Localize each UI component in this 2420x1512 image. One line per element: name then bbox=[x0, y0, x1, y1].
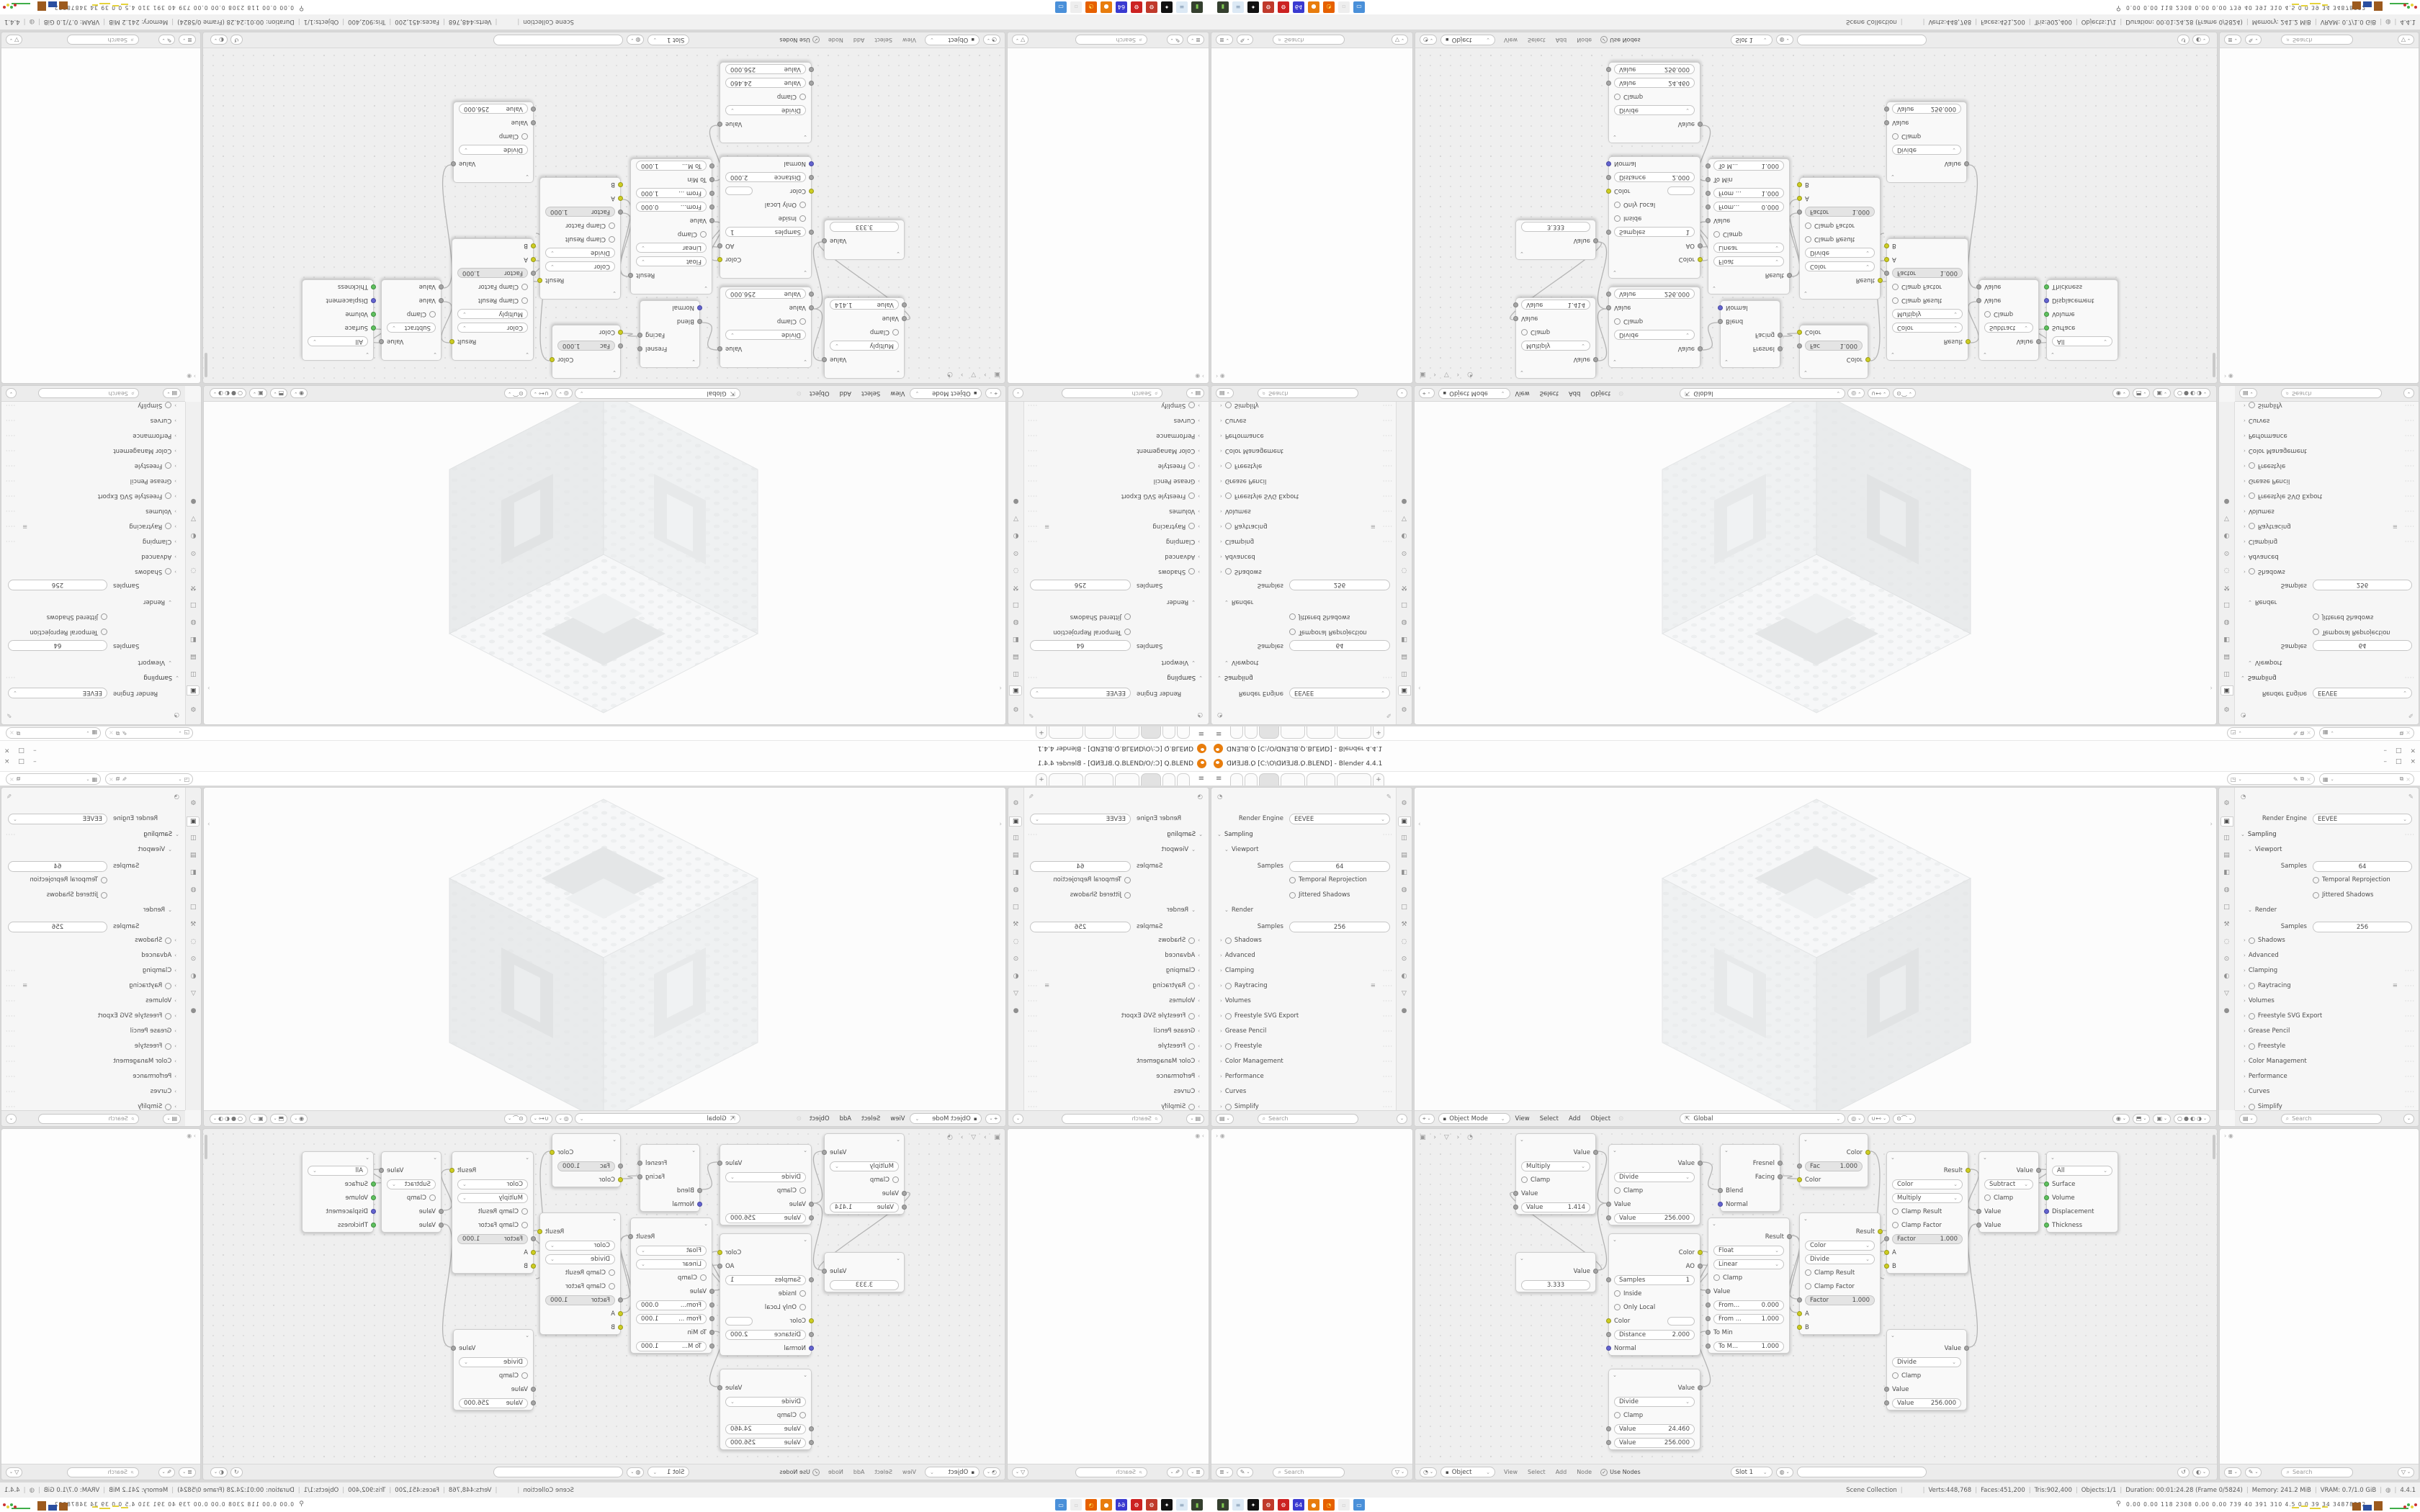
properties-section-clamping[interactable]: ›Clamping···· bbox=[2244, 538, 2415, 545]
node-select[interactable]: Divide⌄ bbox=[725, 1172, 806, 1182]
input-socket[interactable] bbox=[531, 120, 536, 125]
input-socket[interactable] bbox=[618, 343, 623, 348]
workspace-tab-5[interactable] bbox=[1307, 726, 1335, 739]
node-editor-scrollbar[interactable] bbox=[205, 353, 207, 377]
menu-icon[interactable]: ≡ bbox=[1198, 729, 1204, 737]
render-engine-dropdown[interactable]: EEVEE⌄ bbox=[1289, 688, 1390, 698]
input-socket[interactable] bbox=[1706, 191, 1711, 196]
checkbox[interactable] bbox=[1188, 523, 1195, 530]
workspace-tab-3[interactable] bbox=[1259, 773, 1279, 786]
output-socket[interactable] bbox=[1698, 1385, 1703, 1390]
input-socket[interactable] bbox=[439, 284, 444, 289]
node-math-divide-2[interactable]: ⌄ValueDivide⌄ClampValueValue256.000 bbox=[1886, 1329, 1967, 1410]
properties-tab-icon-1[interactable]: ⚙ bbox=[1010, 799, 1023, 809]
editor-type-button[interactable]: ◔⌄ bbox=[1420, 35, 1437, 45]
node-collapse-icon[interactable]: ⌄ bbox=[1708, 282, 1789, 294]
input-socket[interactable] bbox=[709, 204, 714, 210]
node-number-field[interactable]: Value256.000 bbox=[725, 1438, 806, 1448]
input-socket[interactable] bbox=[1606, 305, 1611, 310]
properties-section-simplify[interactable]: ›Simplify···· bbox=[1027, 402, 1200, 409]
copy-icon[interactable]: ⧉ bbox=[2300, 775, 2305, 783]
workspace-tab-3[interactable] bbox=[1259, 726, 1279, 739]
checkbox[interactable] bbox=[1188, 493, 1195, 500]
node-collapse-icon[interactable]: ⌄ bbox=[2047, 1152, 2117, 1164]
node-checkbox[interactable] bbox=[700, 231, 707, 238]
properties-tab-icon-5[interactable]: ◧ bbox=[1010, 868, 1023, 878]
properties-tab-icon-10[interactable]: ⊙ bbox=[2220, 547, 2233, 557]
floppy64-icon[interactable]: 64 bbox=[1116, 1, 1127, 13]
node-checkbox[interactable] bbox=[1892, 1208, 1899, 1215]
workspace-tab-4[interactable] bbox=[1281, 726, 1305, 739]
use-nodes-checkbox[interactable]: ✓ Use Nodes bbox=[779, 1469, 820, 1476]
input-socket[interactable] bbox=[1606, 1277, 1611, 1282]
viewport-tool-button-2[interactable]: ∪⊷⌄ bbox=[530, 1114, 552, 1124]
node-select[interactable]: Subtract⌄ bbox=[387, 1179, 436, 1189]
properties-section-freestyle-svg-export[interactable]: ›Freestyle SVG Export···· bbox=[2244, 492, 2415, 500]
search-input[interactable]: ⌕ Search bbox=[38, 389, 139, 399]
input-socket[interactable] bbox=[371, 325, 376, 330]
render-engine-dropdown[interactable]: EEVEE⌄ bbox=[2313, 688, 2412, 698]
node-collapse-icon[interactable]: ⌄ bbox=[631, 1218, 712, 1230]
properties-section-viewport[interactable]: ⌄Viewport bbox=[1224, 659, 1393, 666]
filter-dropdown[interactable]: ▽⌄ bbox=[1012, 35, 1028, 45]
overlay-dropdown[interactable]: ◐⌄ bbox=[210, 1467, 228, 1477]
properties-section-render[interactable]: ⌄Render bbox=[5, 906, 172, 914]
input-socket[interactable] bbox=[809, 1346, 814, 1351]
filter-dropdown[interactable]: ▽⌄ bbox=[6, 1467, 22, 1477]
properties-section-clamping[interactable]: ›Clamping···· bbox=[5, 967, 176, 974]
input-socket[interactable] bbox=[2044, 1223, 2049, 1228]
properties-section-color-management[interactable]: ›Color Management···· bbox=[5, 447, 176, 454]
render-engine-dropdown[interactable]: EEVEE⌄ bbox=[2313, 814, 2412, 824]
node-select[interactable]: Divide⌄ bbox=[1614, 1172, 1695, 1182]
node-checkbox[interactable] bbox=[1521, 1176, 1528, 1183]
properties-section-sampling[interactable]: ⌄Sampling···· bbox=[1027, 831, 1203, 838]
checkbox[interactable] bbox=[1124, 892, 1131, 899]
node-checkbox[interactable] bbox=[1713, 1274, 1720, 1281]
viewport-tool-button-1[interactable]: ◎⌄ bbox=[1847, 1114, 1865, 1124]
checkbox[interactable] bbox=[101, 892, 107, 899]
properties-section-clamping[interactable]: ›Clamping···· bbox=[1220, 538, 1393, 545]
node-checkbox[interactable] bbox=[521, 284, 528, 290]
input-socket[interactable] bbox=[2044, 325, 2049, 330]
node-math-subtract[interactable]: ⌄ValueSubtract⌄ClampValueValue bbox=[1978, 279, 2039, 361]
node-select[interactable]: Float⌄ bbox=[636, 257, 707, 267]
properties-section-advanced[interactable]: ›Advanced bbox=[2244, 553, 2415, 560]
properties-tab-icon-7[interactable]: □ bbox=[1398, 903, 1411, 913]
system-monitor-icon[interactable]: ▮ bbox=[1191, 1499, 1203, 1511]
node-checkbox[interactable] bbox=[799, 215, 806, 222]
output-socket[interactable] bbox=[1698, 122, 1703, 127]
node-select[interactable]: Multiply⌄ bbox=[830, 1161, 899, 1171]
node-material-output[interactable]: ⌄All⌄SurfaceVolumeDisplacementThickness bbox=[2046, 279, 2118, 361]
properties-section-raytracing[interactable]: ›Raytracing≡···· bbox=[5, 982, 176, 989]
properties-section-performance[interactable]: ›Performance···· bbox=[1027, 432, 1200, 439]
menu-add[interactable]: Add bbox=[1556, 37, 1567, 43]
viewport-tool-button-3[interactable]: ⊙⌒⌄ bbox=[1893, 389, 1916, 399]
properties-section-curves[interactable]: ›Curves···· bbox=[5, 417, 176, 424]
properties-section-render[interactable]: ⌄Render bbox=[1027, 906, 1196, 914]
viewport-tool-button-3[interactable]: ⊙⌒⌄ bbox=[504, 1114, 527, 1124]
node-checkbox[interactable] bbox=[521, 1208, 528, 1215]
properties-tab-icon-6[interactable]: ◍ bbox=[187, 616, 200, 626]
checkbox[interactable] bbox=[2313, 892, 2319, 899]
input-socket[interactable] bbox=[371, 312, 376, 317]
node-number-field[interactable]: Fac1.000 bbox=[557, 1161, 615, 1171]
node-number-field[interactable]: Distance2.000 bbox=[1614, 1330, 1695, 1340]
output-socket[interactable] bbox=[1865, 357, 1870, 362]
node-collapse-icon[interactable]: ⌄ bbox=[1721, 1145, 1780, 1156]
node-collapse-icon[interactable]: ⌄ bbox=[1979, 348, 2038, 360]
search-input[interactable]: ⌕ Search bbox=[2281, 389, 2382, 399]
node-collapse-icon[interactable]: ⌄ bbox=[382, 1152, 441, 1164]
copy-icon[interactable]: ⧉ bbox=[17, 775, 21, 783]
properties-section-color-management[interactable]: ›Color Management···· bbox=[1027, 447, 1200, 454]
input-socket[interactable] bbox=[371, 284, 376, 289]
properties-tab-icon-10[interactable]: ⊙ bbox=[187, 955, 200, 965]
use-nodes-checkbox[interactable]: ✓ Use Nodes bbox=[779, 37, 820, 44]
node-ambient-occlusion[interactable]: ⌄ColorAOSamples1InsideOnly LocalColorDis… bbox=[720, 1233, 812, 1356]
node-number-field[interactable]: To M...1.000 bbox=[636, 161, 707, 171]
properties-section-shadows[interactable]: ›Shadows bbox=[1027, 937, 1200, 944]
ghost-app-icon[interactable]: ▫ bbox=[1338, 1, 1350, 13]
properties-section-sampling[interactable]: ⌄Sampling···· bbox=[2241, 831, 2415, 838]
node-math-divide-3[interactable]: ⌄ValueDivide⌄ClampValue24.460Value256.00… bbox=[1608, 1369, 1700, 1450]
properties-tab-icon-13[interactable]: ● bbox=[187, 495, 200, 505]
properties-section-render[interactable]: ⌄Render bbox=[2248, 906, 2415, 914]
properties-section-sampling[interactable]: ⌄Sampling···· bbox=[5, 831, 179, 838]
properties-tab-icon-5[interactable]: ◧ bbox=[1398, 634, 1411, 644]
properties-section-color-management[interactable]: ›Color Management···· bbox=[2244, 1058, 2415, 1065]
transform-pivot-icon[interactable]: ⊙ bbox=[1618, 1115, 1623, 1122]
ghost-app-icon[interactable]: ▫ bbox=[1338, 1499, 1350, 1511]
menu-node[interactable]: Node bbox=[1577, 37, 1592, 43]
properties-section-render[interactable]: ⌄Render bbox=[1224, 598, 1393, 606]
panel-corner-icons[interactable]: › ◉ bbox=[187, 373, 196, 379]
node-number-field[interactable]: Factor1.000 bbox=[545, 1295, 615, 1305]
properties-tab-icon-12[interactable]: ▽ bbox=[1010, 989, 1023, 999]
input-socket[interactable] bbox=[2044, 312, 2049, 317]
node-number-field[interactable]: Factor1.000 bbox=[545, 207, 615, 217]
node-number-field[interactable]: Value1.414 bbox=[1521, 1202, 1590, 1212]
copy-icon[interactable]: ⧉ bbox=[2400, 775, 2404, 783]
add-workspace-button[interactable]: + bbox=[1036, 773, 1047, 786]
checkbox[interactable] bbox=[1225, 1043, 1232, 1050]
properties-tab-icon-9[interactable]: ◌ bbox=[2220, 564, 2233, 575]
property-value-field[interactable]: 64 bbox=[2313, 640, 2412, 651]
node-number-field[interactable]: Samples1 bbox=[725, 228, 806, 238]
checkbox[interactable] bbox=[165, 523, 171, 530]
checkbox[interactable] bbox=[1124, 877, 1131, 883]
input-socket[interactable] bbox=[1706, 1289, 1711, 1294]
orientation-dropdown[interactable]: ⇱Global⌄ bbox=[1680, 1113, 1845, 1124]
overlay-dropdown[interactable]: ◐⌄ bbox=[2192, 1467, 2210, 1477]
node-map-range[interactable]: ⌄ResultFloat⌄Linear⌄ClampValueFrom...0.0… bbox=[1708, 1218, 1790, 1354]
output-socket[interactable] bbox=[379, 339, 384, 344]
properties-tab-icon-13[interactable]: ● bbox=[187, 1007, 200, 1017]
viewport-tool-button-3[interactable]: ⊙⌒⌄ bbox=[1893, 1114, 1916, 1124]
viewport-tool-button-1[interactable]: ◎⌄ bbox=[555, 389, 573, 399]
properties-section-render[interactable]: ⌄Render bbox=[1027, 598, 1196, 606]
color-swatch[interactable] bbox=[1667, 187, 1695, 196]
properties-section-jittered-shadows[interactable]: Jittered Shadows bbox=[1027, 613, 1131, 621]
input-socket[interactable] bbox=[439, 1223, 444, 1228]
output-socket[interactable] bbox=[822, 238, 827, 243]
output-socket[interactable] bbox=[637, 346, 642, 351]
node-graph[interactable]: ▣ › ▽ › ◔ ⌄ValueMultiply⌄ClampValueValue… bbox=[1415, 1129, 2217, 1464]
close-button[interactable]: × bbox=[2410, 747, 2416, 754]
input-socket[interactable] bbox=[618, 1177, 623, 1182]
checkbox[interactable] bbox=[1225, 937, 1232, 944]
input-socket[interactable] bbox=[1718, 1202, 1723, 1207]
input-socket[interactable] bbox=[1513, 316, 1518, 321]
workspace-tab-1[interactable] bbox=[1177, 726, 1190, 739]
output-socket[interactable] bbox=[2036, 339, 2041, 344]
input-socket[interactable] bbox=[2044, 1195, 2049, 1200]
menu-add[interactable]: Add bbox=[840, 1115, 851, 1122]
workspace-tab-3[interactable] bbox=[1141, 726, 1161, 739]
properties-tab-icon-1[interactable]: ⚙ bbox=[187, 799, 200, 809]
node-collapse-icon[interactable]: ⌄ bbox=[302, 1152, 373, 1164]
shader-editor[interactable]: ▣ › ▽ › ◔ ⌄ValueMultiply⌄ClampValueValue… bbox=[202, 32, 1005, 384]
node-select[interactable]: All⌄ bbox=[308, 337, 368, 347]
node-select[interactable]: Color⌄ bbox=[545, 262, 615, 272]
properties-tab-icon-10[interactable]: ⊙ bbox=[1398, 955, 1411, 965]
node-checkbox[interactable] bbox=[609, 1283, 615, 1290]
properties-section-grease-pencil[interactable]: ›Grease Pencil···· bbox=[2244, 477, 2415, 485]
properties-tab-icon-8[interactable]: ⚒ bbox=[2220, 920, 2233, 930]
sidebar-toggle-right-icon[interactable]: › bbox=[2210, 821, 2213, 828]
shader-context-dropdown[interactable]: ▪Object⌄ bbox=[1440, 1467, 1495, 1477]
node-invert-color[interactable]: ⌄ColorFac1.000Color bbox=[1799, 325, 1868, 379]
node-select[interactable]: Multiply⌄ bbox=[1521, 341, 1590, 351]
slot-dropdown[interactable]: Slot 1⌄ bbox=[647, 35, 689, 45]
properties-tab-icon-13[interactable]: ● bbox=[1398, 1007, 1411, 1017]
output-socket[interactable] bbox=[637, 1174, 642, 1179]
properties-tab-icon-7[interactable]: □ bbox=[187, 599, 200, 609]
ghost-app-icon[interactable]: ▫ bbox=[1070, 1499, 1082, 1511]
pin-icon[interactable]: ✎ bbox=[6, 793, 12, 801]
menu-select[interactable]: Select bbox=[1528, 37, 1546, 43]
display-settings-icon[interactable]: ▭ bbox=[1055, 1499, 1067, 1511]
pin-icon[interactable]: ✎ bbox=[1386, 711, 1391, 719]
properties-tab-icon-4[interactable]: ▤ bbox=[1398, 651, 1411, 661]
minimize-button[interactable]: – bbox=[33, 747, 37, 754]
input-socket[interactable] bbox=[1797, 1325, 1802, 1330]
node-select[interactable]: Color⌄ bbox=[457, 323, 528, 333]
node-number-field[interactable]: Value24.460 bbox=[725, 1424, 806, 1434]
properties-section-clamping[interactable]: ›Clamping···· bbox=[1027, 538, 1200, 545]
options-dropdown[interactable]: ⌄ bbox=[1397, 1114, 1407, 1124]
properties-tab-icon-2[interactable]: ▣ bbox=[1398, 816, 1411, 827]
panel-corner-icons[interactable]: › ◉ bbox=[2224, 1133, 2233, 1139]
overlay-button-1[interactable]: ◉⌄ bbox=[290, 389, 308, 399]
properties-section-freestyle-svg-export[interactable]: ›Freestyle SVG Export···· bbox=[1220, 1012, 1393, 1020]
properties-section-volumes[interactable]: ›Volumes···· bbox=[1027, 997, 1200, 1004]
checkbox[interactable] bbox=[2313, 877, 2319, 883]
input-socket[interactable] bbox=[1884, 1250, 1889, 1255]
output-socket[interactable] bbox=[451, 1346, 456, 1351]
pin-icon[interactable]: ✎ bbox=[2293, 776, 2298, 783]
property-value-field[interactable]: 64 bbox=[8, 640, 107, 651]
paint-mode-dropdown[interactable]: ✎⌄ bbox=[1237, 35, 1254, 45]
properties-section-performance[interactable]: ›Performance···· bbox=[2244, 1073, 2415, 1080]
node-collapse-icon[interactable]: ⌄ bbox=[1800, 287, 1880, 299]
node-select[interactable]: All⌄ bbox=[308, 1166, 368, 1176]
node-select[interactable]: Divide⌄ bbox=[1614, 1397, 1695, 1407]
node-mix-multiply[interactable]: ⌄ResultColor⌄Multiply⌄Clamp ResultClamp … bbox=[1886, 1151, 1968, 1274]
properties-section-volumes[interactable]: ›Volumes···· bbox=[5, 508, 176, 515]
properties-section-simplify[interactable]: ›Simplify···· bbox=[1027, 1103, 1200, 1110]
properties-tab-icon-12[interactable]: ▽ bbox=[187, 513, 200, 523]
node-checkbox[interactable] bbox=[1892, 1372, 1899, 1379]
node-invert-color[interactable]: ⌄ColorFac1.000Color bbox=[552, 1133, 621, 1187]
sidebar-toggle-left-icon[interactable]: ‹ bbox=[999, 821, 1002, 828]
node-number-field[interactable]: Value24.460 bbox=[1614, 1424, 1695, 1434]
properties-section-performance[interactable]: ›Performance···· bbox=[5, 1073, 176, 1080]
properties-section-curves[interactable]: ›Curves···· bbox=[1220, 417, 1393, 424]
properties-tab-icon-6[interactable]: ◍ bbox=[2220, 886, 2233, 896]
input-socket[interactable] bbox=[618, 196, 623, 201]
node-collapse-icon[interactable]: ⌄ bbox=[1516, 1134, 1595, 1146]
checkbox[interactable] bbox=[165, 937, 171, 944]
node-value-field[interactable]: 3.333 bbox=[1521, 1280, 1590, 1290]
mode-dropdown[interactable]: ▪Object Mode⌄ bbox=[1438, 1113, 1510, 1124]
node-select[interactable]: Multiply⌄ bbox=[1892, 310, 1963, 320]
properties-tab-icon-5[interactable]: ◧ bbox=[187, 634, 200, 644]
properties-tab-icon-7[interactable]: □ bbox=[2220, 903, 2233, 913]
node-math-divide-1[interactable]: ⌄ValueDivide⌄ClampValueValue256.000 bbox=[720, 287, 812, 368]
checkbox[interactable] bbox=[165, 493, 171, 500]
node-number-field[interactable]: From...0.000 bbox=[636, 1300, 707, 1310]
node-math-multiply[interactable]: ⌄ValueMultiply⌄ClampValueValue1.414 bbox=[824, 297, 905, 379]
checkbox[interactable] bbox=[1124, 629, 1131, 636]
node-select[interactable]: Float⌄ bbox=[636, 1246, 707, 1256]
output-socket[interactable] bbox=[1966, 339, 1971, 344]
search-input[interactable]: ⌕ Search bbox=[2281, 1114, 2382, 1124]
properties-section-temporal-reprojection[interactable]: Temporal Reprojection bbox=[5, 876, 107, 883]
output-socket[interactable] bbox=[822, 1150, 827, 1155]
properties-tab-icon-7[interactable]: □ bbox=[1010, 903, 1023, 913]
node-collapse-icon[interactable]: ⌄ bbox=[1800, 1134, 1868, 1146]
node-collapse-icon[interactable]: ⌄ bbox=[640, 356, 699, 367]
node-number-field[interactable]: To M...1.000 bbox=[1713, 161, 1784, 171]
workspace-tab-6[interactable] bbox=[1337, 773, 1371, 786]
properties-tab-icon-12[interactable]: ▽ bbox=[1398, 989, 1411, 999]
node-collapse-icon[interactable]: ⌄ bbox=[1887, 348, 1968, 360]
properties-tab-icon-11[interactable]: ◐ bbox=[1398, 530, 1411, 540]
input-socket[interactable] bbox=[1606, 292, 1611, 297]
properties-tab-icon-10[interactable]: ⊙ bbox=[2220, 955, 2233, 965]
node-checkbox[interactable] bbox=[521, 1372, 528, 1379]
options-dropdown[interactable]: ⌄ bbox=[1013, 389, 1023, 399]
node-checkbox[interactable] bbox=[1892, 1222, 1899, 1228]
node-value[interactable]: ⌄Value3.333 bbox=[824, 220, 905, 260]
input-socket[interactable] bbox=[439, 298, 444, 303]
properties-section-sampling[interactable]: ⌄Sampling···· bbox=[1027, 674, 1203, 681]
input-socket[interactable] bbox=[809, 189, 814, 194]
node-collapse-icon[interactable]: ⌄ bbox=[2047, 348, 2117, 360]
node-layer-weight[interactable]: ⌄FresnelFacingBlendNormal bbox=[640, 300, 700, 368]
menu-add[interactable]: Add bbox=[853, 1469, 865, 1475]
checkbox[interactable] bbox=[1289, 892, 1296, 899]
properties-section-shadows[interactable]: ›Shadows bbox=[1220, 568, 1393, 575]
properties-section-curves[interactable]: ›Curves···· bbox=[5, 1088, 176, 1095]
node-math-divide-3[interactable]: ⌄ValueDivide⌄ClampValue24.460Value256.00… bbox=[720, 1369, 812, 1450]
material-name-field[interactable] bbox=[1797, 1467, 1927, 1477]
properties-section-jittered-shadows[interactable]: Jittered Shadows bbox=[5, 613, 107, 621]
render-engine-dropdown[interactable]: EEVEE⌄ bbox=[8, 688, 107, 698]
workspace-tab-6[interactable] bbox=[1049, 773, 1083, 786]
menu-select[interactable]: Select bbox=[874, 1469, 892, 1475]
properties-section-shadows[interactable]: ›Shadows bbox=[2244, 568, 2415, 575]
node-value-field[interactable]: 3.333 bbox=[1521, 222, 1590, 233]
floppy64-icon[interactable]: 64 bbox=[1293, 1, 1304, 13]
node-collapse-icon[interactable]: ⌄ bbox=[1516, 366, 1595, 378]
transform-pivot-icon[interactable]: ⊙ bbox=[797, 1115, 802, 1122]
node-checkbox[interactable] bbox=[521, 133, 528, 140]
shader-editor[interactable]: ▣ › ▽ › ◔ ⌄ValueMultiply⌄ClampValueValue… bbox=[1415, 1128, 2218, 1480]
input-socket[interactable] bbox=[697, 305, 702, 310]
paint-mode-dropdown[interactable]: ✎⌄ bbox=[2245, 1467, 2262, 1477]
properties-section-sampling[interactable]: ⌄Sampling···· bbox=[1217, 674, 1393, 681]
input-socket[interactable] bbox=[531, 1387, 536, 1392]
overlay-button-2[interactable]: ⬒⌄ bbox=[2133, 1114, 2151, 1124]
node-number-field[interactable]: From ...1.000 bbox=[1713, 189, 1784, 199]
node-material-output[interactable]: ⌄All⌄SurfaceVolumeDisplacementThickness bbox=[302, 1151, 374, 1233]
properties-section-temporal-reprojection[interactable]: Temporal Reprojection bbox=[2313, 876, 2415, 883]
render-engine-dropdown[interactable]: EEVEE⌄ bbox=[1030, 814, 1131, 824]
node-number-field[interactable]: Value256.000 bbox=[725, 289, 806, 300]
sidebar-toggle-left-icon[interactable]: ‹ bbox=[999, 684, 1002, 691]
node-number-field[interactable]: Distance2.000 bbox=[725, 173, 806, 183]
node-number-field[interactable]: From...0.000 bbox=[636, 202, 707, 212]
properties-tab-icon-3[interactable]: ◫ bbox=[187, 834, 200, 844]
node-collapse-icon[interactable]: ⌄ bbox=[1516, 1253, 1595, 1264]
overlay-button-1[interactable]: ◉⌄ bbox=[2112, 1114, 2130, 1124]
node-collapse-icon[interactable]: ⌄ bbox=[454, 171, 533, 182]
checkbox[interactable] bbox=[101, 614, 107, 621]
output-socket[interactable] bbox=[2036, 1168, 2041, 1173]
node-select[interactable]: Divide⌄ bbox=[1614, 330, 1695, 341]
menu-add[interactable]: Add bbox=[853, 37, 865, 43]
minimize-button[interactable]: – bbox=[2383, 747, 2387, 754]
maximize-button[interactable]: □ bbox=[2396, 747, 2402, 754]
node-checkbox[interactable] bbox=[1614, 215, 1621, 222]
properties-section-volumes[interactable]: ›Volumes···· bbox=[2244, 997, 2415, 1004]
properties-tab-icon-8[interactable]: ⚒ bbox=[187, 582, 200, 592]
menu-add[interactable]: Add bbox=[1569, 1115, 1580, 1122]
viewport-tool-button-2[interactable]: ∪⊷⌄ bbox=[530, 389, 552, 399]
options-dropdown[interactable]: ⌄ bbox=[1013, 1114, 1023, 1124]
input-socket[interactable] bbox=[1606, 1332, 1611, 1337]
input-socket[interactable] bbox=[697, 319, 702, 324]
properties-tab-icon-1[interactable]: ⚙ bbox=[2220, 703, 2233, 713]
properties-tab-icon-3[interactable]: ◫ bbox=[187, 668, 200, 678]
editor-type-button[interactable]: ◔⌄ bbox=[983, 35, 1000, 45]
output-socket[interactable] bbox=[717, 243, 722, 248]
node-number-field[interactable]: Factor1.000 bbox=[1892, 1234, 1963, 1244]
input-socket[interactable] bbox=[1884, 257, 1889, 262]
node-checkbox[interactable] bbox=[892, 329, 899, 336]
viewport-3d[interactable]: ‹ › bbox=[203, 385, 1006, 725]
output-socket[interactable] bbox=[550, 357, 555, 362]
overlay-button-3[interactable]: ▣⌄ bbox=[249, 1114, 267, 1124]
properties-section-jittered-shadows[interactable]: Jittered Shadows bbox=[5, 891, 107, 899]
menu-view[interactable]: View bbox=[902, 1469, 916, 1475]
menu-view[interactable]: View bbox=[1504, 1469, 1518, 1475]
input-socket[interactable] bbox=[1718, 1188, 1723, 1193]
